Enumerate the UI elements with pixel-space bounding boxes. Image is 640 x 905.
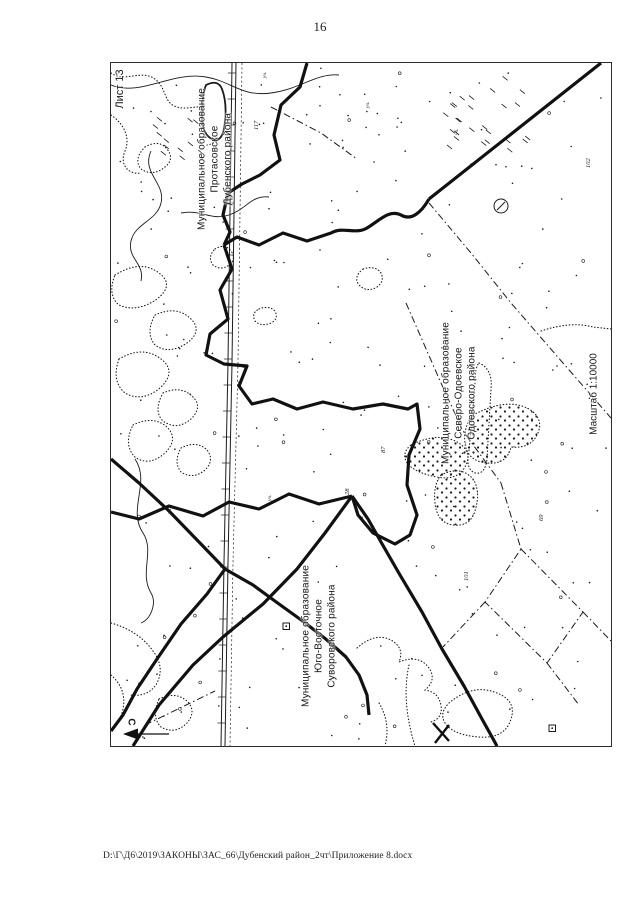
municipal-label-protasovskoe: Муниципальное образование Протасовское Д… — [196, 88, 235, 230]
plot-label: уч. — [365, 102, 371, 109]
compass-north-letter: С — [126, 718, 137, 725]
municipal-label-line: Дубенского района — [222, 88, 235, 230]
plot-label: уч. — [267, 495, 273, 502]
north-arrow-icon — [123, 729, 169, 740]
sheet-label: Лист 13 — [114, 69, 126, 108]
plot-number: 69 — [538, 514, 545, 521]
municipal-label-line: Муниципальное образование — [300, 565, 313, 707]
plot-label: уч. — [167, 508, 173, 515]
map-drawing: уч. уч. уч. уч. уч. 28 87 102 117 101 69 — [111, 63, 611, 746]
scale-label: Масштаб 1:10000 — [589, 353, 600, 435]
municipal-label-line: Одоевского района — [466, 322, 479, 464]
speckle-texture — [115, 68, 607, 740]
map-sheet: уч. уч. уч. уч. уч. 28 87 102 117 101 69… — [110, 62, 612, 747]
plot-number: 101 — [463, 571, 470, 581]
plot-label: уч. — [454, 129, 460, 136]
footer-file-path: D:\Г\Д6\2019\ЗАКОНЫ\ЗАС_66\Дубенский рай… — [103, 851, 412, 861]
municipal-label-line: Северо-Одоевское — [453, 322, 466, 464]
plot-number: 102 — [585, 158, 592, 169]
plot-number: 117 — [253, 120, 260, 130]
municipal-label-line: Муниципальное образование — [196, 88, 209, 230]
plot-number: 28 — [344, 488, 351, 495]
municipal-label-line: Суворовского района — [326, 565, 339, 707]
page-number: 16 — [0, 19, 640, 35]
municipal-label-line: Юго-Восточное — [313, 565, 326, 707]
plot-number: 87 — [380, 446, 387, 453]
plot-label: уч. — [262, 72, 268, 79]
municipal-label-line: Муниципальное образование — [440, 322, 453, 464]
document-page: 16 — [0, 0, 640, 905]
municipal-label-yugo-vostochnoe: Муниципальное образование Юго-Восточное … — [300, 565, 339, 707]
municipal-label-severo-odoevskoe: Муниципальное образование Северо-Одоевск… — [440, 322, 479, 464]
municipal-label-line: Протасовское — [209, 88, 222, 230]
plot-numbers: 28 87 102 117 101 69 — [253, 120, 592, 581]
dotted-contours — [111, 73, 611, 746]
